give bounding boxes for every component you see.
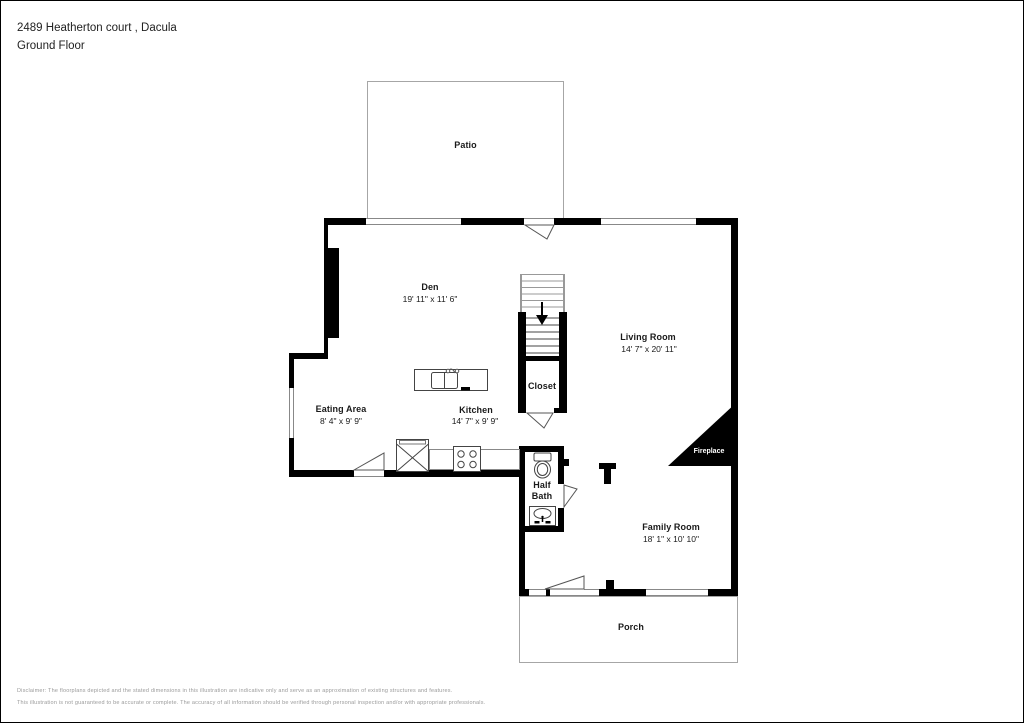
bathroom-sink-icon xyxy=(530,507,556,526)
disclaimer-line2: This illustration is not guaranteed to b… xyxy=(17,700,485,706)
stove-icon xyxy=(454,447,481,472)
eating-area-dimensions: 8' 4" x 9' 9" xyxy=(301,416,381,426)
refrigerator-icon xyxy=(397,440,429,472)
half-bath-label-line1: Half xyxy=(512,480,572,490)
den-label: Den xyxy=(400,282,460,292)
living-room-label: Living Room xyxy=(608,332,688,342)
fireplace-label: Fireplace xyxy=(685,448,733,455)
patio-label: Patio xyxy=(367,140,564,150)
closet-label: Closet xyxy=(512,381,572,391)
floorplan-page: 2489 Heatherton court , Dacula Ground Fl… xyxy=(0,0,1024,723)
den-dimensions: 19' 11" x 11' 6" xyxy=(390,294,470,304)
fixtures-overlay xyxy=(1,1,1024,723)
family-room-label: Family Room xyxy=(631,522,711,532)
porch-label: Porch xyxy=(591,622,671,632)
stairs-down-arrow-icon xyxy=(536,302,548,325)
half-bath-label-line2: Bath xyxy=(512,491,572,501)
living-room-dimensions: 14' 7" x 20' 11" xyxy=(608,344,690,354)
kitchen-island xyxy=(415,369,488,391)
porch-door-swing xyxy=(545,576,584,589)
toilet-icon xyxy=(534,453,551,478)
kitchen-dimensions: 14' 7" x 9' 9" xyxy=(435,416,515,426)
island-appliance-mark xyxy=(461,387,470,391)
eating-area-door-swing xyxy=(354,453,384,470)
eating-area-label: Eating Area xyxy=(301,404,381,414)
closet-door-swing xyxy=(527,413,553,428)
patio-door-swing xyxy=(525,225,554,239)
disclaimer-line1: Disclaimer: The floorplans depicted and … xyxy=(17,688,452,694)
kitchen-label: Kitchen xyxy=(436,405,516,415)
family-room-dimensions: 18' 1" x 10' 10" xyxy=(629,534,713,544)
fireplace-shape xyxy=(668,402,737,466)
